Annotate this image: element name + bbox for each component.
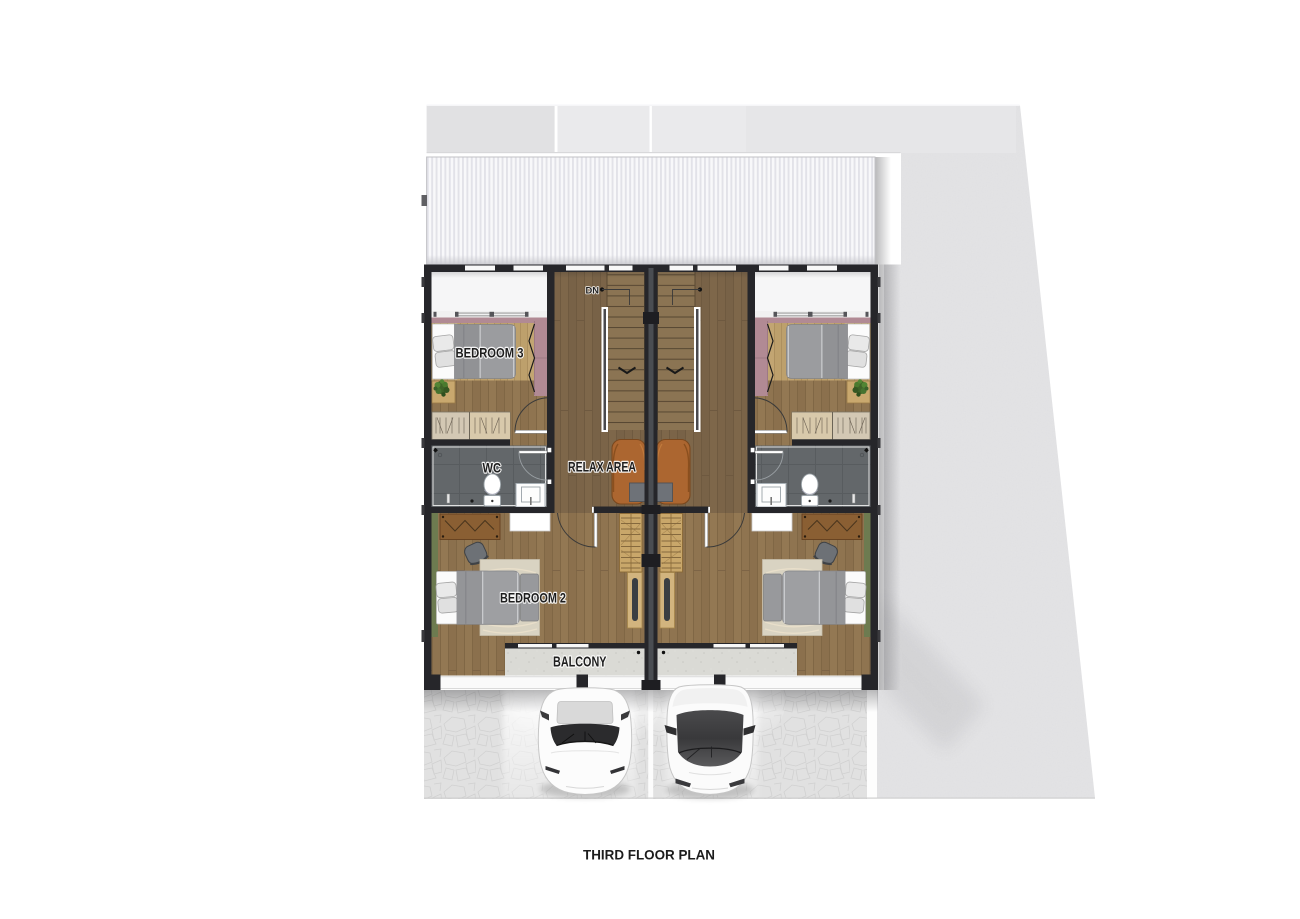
svg-text:DN: DN	[586, 286, 600, 297]
svg-text:BALCONY: BALCONY	[553, 654, 607, 671]
svg-text:THIRD FLOOR PLAN: THIRD FLOOR PLAN	[583, 847, 715, 863]
svg-text:BEDROOM 2: BEDROOM 2	[500, 590, 566, 606]
svg-text:RELAX AREA: RELAX AREA	[568, 459, 636, 475]
svg-text:WC: WC	[483, 461, 502, 476]
svg-text:BEDROOM 3: BEDROOM 3	[456, 345, 524, 361]
